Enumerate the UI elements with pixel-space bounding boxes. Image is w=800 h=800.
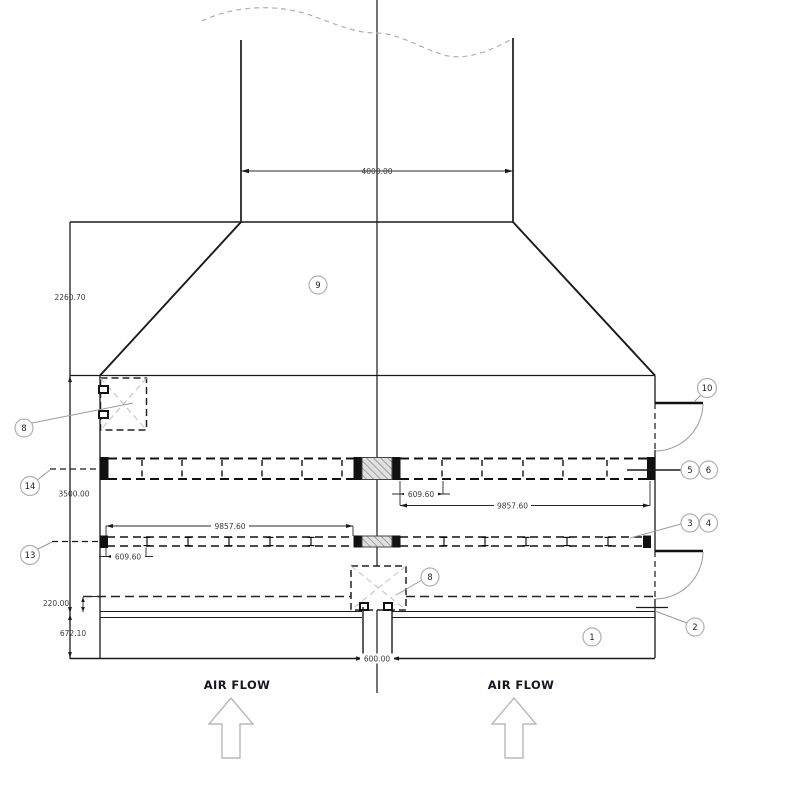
upper-row-end-block-left (100, 457, 109, 480)
callout-1: 1 (583, 628, 601, 646)
air-flow-label-left: AIR FLOW (204, 678, 270, 692)
panel-foot-right (384, 603, 392, 610)
svg-text:2: 2 (692, 623, 697, 633)
svg-text:1: 1 (589, 633, 594, 643)
svg-text:10: 10 (702, 384, 713, 394)
cooling-tower-elevation-drawing: 4000.00 2260.70 3500.00 220.00 672.10 60… (0, 0, 800, 800)
dim-duct-width: 4000.00 (361, 167, 392, 176)
lower-row-end-block-right (643, 536, 651, 549)
dim-water-level: 220.00 (43, 599, 69, 608)
upper-row-center-hatch (362, 458, 392, 480)
panel-hinge-bottom (99, 411, 108, 418)
callout-14: 14 (21, 477, 40, 496)
air-flow-label-right: AIR FLOW (488, 678, 554, 692)
svg-text:6: 6 (706, 466, 711, 476)
lower-row-center-block-right (392, 536, 401, 548)
callout-6: 6 (700, 461, 718, 479)
page-background (0, 0, 800, 800)
dim-lower-header-offset: 609.60 (115, 553, 141, 562)
callout-2: 2 (686, 618, 704, 636)
svg-text:8: 8 (427, 573, 432, 583)
svg-text:3: 3 (687, 519, 692, 529)
upper-row-center-block-left (354, 457, 363, 480)
dim-upper-header-offset: 609.60 (408, 490, 434, 499)
svg-text:5: 5 (687, 466, 692, 476)
callout-3: 3 (681, 514, 699, 532)
access-panel-center (351, 566, 406, 610)
dim-lower-header-length: 9857.60 (214, 522, 245, 531)
callout-10: 10 (698, 379, 717, 398)
upper-row-end-block-right (647, 457, 656, 480)
dim-hood-height: 2260.70 (54, 293, 85, 302)
lower-row-end-block-left (100, 536, 108, 549)
dim-casing-height: 3500.00 (58, 490, 89, 499)
callout-8-left: 8 (15, 419, 33, 437)
svg-text:9: 9 (315, 281, 320, 291)
callout-8-center: 8 (421, 568, 439, 586)
svg-text:14: 14 (25, 482, 36, 492)
dim-basin-height: 672.10 (60, 629, 86, 638)
callout-9: 9 (309, 276, 327, 294)
svg-text:4: 4 (706, 519, 711, 529)
callout-5: 5 (681, 461, 699, 479)
svg-text:13: 13 (25, 551, 36, 561)
lower-row-center-block-left (354, 536, 363, 548)
svg-text:8: 8 (21, 424, 26, 434)
dim-center-column-width: 600.00 (364, 655, 390, 664)
panel-foot-left (360, 603, 368, 610)
callout-4: 4 (700, 514, 718, 532)
upper-row-center-block-right (392, 457, 401, 480)
callout-13: 13 (21, 546, 40, 565)
technical-drawing-page: 4000.00 2260.70 3500.00 220.00 672.10 60… (0, 0, 800, 800)
lower-row-center-hatch (362, 536, 392, 547)
dim-upper-header-length: 9857.60 (497, 502, 528, 511)
panel-hinge-top (99, 386, 108, 393)
